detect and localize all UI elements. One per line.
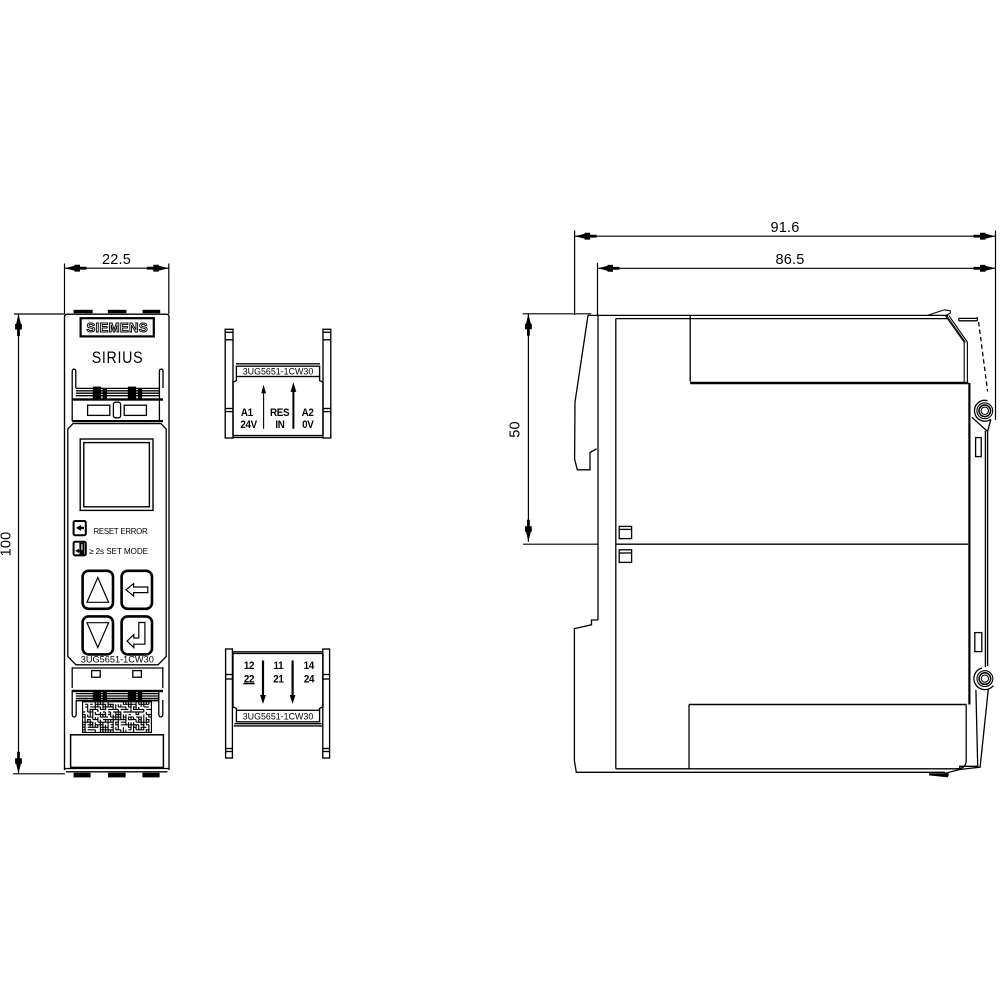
svg-text:RESET ERROR: RESET ERROR <box>94 527 149 536</box>
svg-text:11: 11 <box>274 659 284 672</box>
svg-text:SIRIUS: SIRIUS <box>92 349 144 367</box>
svg-text:24: 24 <box>304 673 315 686</box>
svg-text:24V: 24V <box>240 418 257 431</box>
svg-text:50: 50 <box>508 421 524 438</box>
svg-text:0V: 0V <box>302 418 314 431</box>
svg-text:A2: A2 <box>302 406 314 419</box>
svg-text:22.5: 22.5 <box>102 252 131 268</box>
svg-text:≥ 2s SET MODE: ≥ 2s SET MODE <box>89 547 149 556</box>
svg-text:A1: A1 <box>241 406 253 419</box>
svg-text:100: 100 <box>0 532 15 557</box>
svg-text:3UG5651-1CW30: 3UG5651-1CW30 <box>243 367 314 377</box>
svg-text:RES: RES <box>270 406 289 419</box>
svg-text:21: 21 <box>273 673 284 686</box>
svg-text:SIEMENS: SIEMENS <box>86 320 147 335</box>
svg-text:12: 12 <box>244 659 255 672</box>
svg-text:86.5: 86.5 <box>775 252 804 268</box>
svg-text:14: 14 <box>304 659 315 672</box>
svg-text:3UG5651-1CW30: 3UG5651-1CW30 <box>81 655 154 665</box>
svg-text:3UG5651-1CW30: 3UG5651-1CW30 <box>243 712 314 722</box>
svg-text:91.6: 91.6 <box>770 220 799 236</box>
svg-text:IN: IN <box>275 418 284 431</box>
